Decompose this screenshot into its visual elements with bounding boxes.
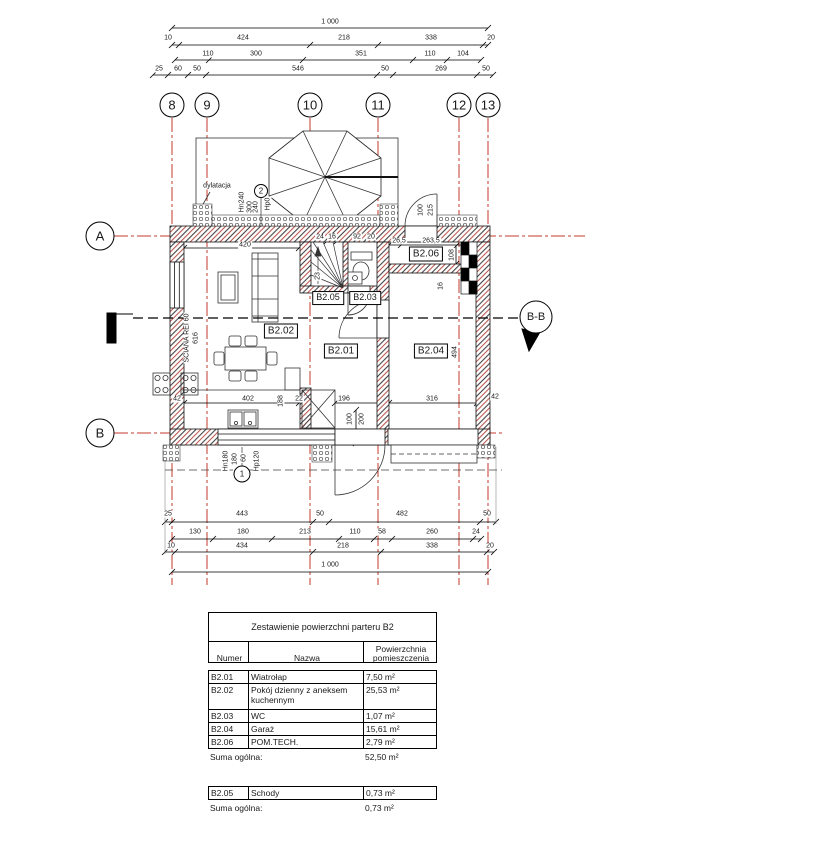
dim-215: 215 xyxy=(428,203,435,217)
col-header-powierzchnia: Powierzchnia pomieszczenia xyxy=(364,642,436,663)
dim-label: 60 xyxy=(173,66,183,73)
table-row: B2.02 Pokój dzienny z aneksem kuchennym … xyxy=(209,684,436,710)
note-hn240: Hn240 xyxy=(239,191,246,214)
cell-numer: B2.01 xyxy=(209,671,249,683)
dim-label: 58 xyxy=(377,529,387,536)
grid-bubble-11: 11 xyxy=(371,98,385,113)
dim-196: 196 xyxy=(337,396,351,403)
cell-nazwa: Schody xyxy=(249,787,364,799)
cell-area: 15,61 m² xyxy=(364,723,436,735)
dim-bottom-total: 1 000 xyxy=(320,562,340,569)
dim-420: 420 xyxy=(238,242,252,249)
dim-label: 338 xyxy=(425,543,439,550)
dim-label: 50 xyxy=(380,66,390,73)
dim-label: 50 xyxy=(481,66,491,73)
dim-label: 482 xyxy=(395,511,409,518)
dim-label: 218 xyxy=(336,543,350,550)
dim-616: 616 xyxy=(193,331,200,345)
floor-plan-sheet: 8 9 10 11 12 13 A B B-B 2 1 1 000 10 424… xyxy=(0,0,819,859)
dim-92: 92 xyxy=(352,234,362,241)
dim-42-right: 42 xyxy=(490,394,500,401)
room-label-b205: B2.05 xyxy=(312,291,344,305)
dim-20: 20 xyxy=(366,234,376,241)
cell-area: 0,73 m² xyxy=(364,787,436,799)
dim-label: 110 xyxy=(201,51,214,58)
dim-494: 494 xyxy=(452,345,459,359)
dim-label: 351 xyxy=(354,51,368,58)
dim-16b: 16 xyxy=(438,281,445,291)
dim-100: 100 xyxy=(418,203,425,217)
dim-label: 24 xyxy=(471,529,481,536)
dim-316: 316 xyxy=(425,396,439,403)
dim-label: 260 xyxy=(425,529,439,536)
dim-label: 50 xyxy=(482,511,492,518)
dim-22: 22 xyxy=(294,396,304,403)
area-table-header: Zestawienie powierzchni parteru B2 Numer… xyxy=(208,612,437,663)
room-label-b202: B2.02 xyxy=(264,324,298,339)
note-hp0: Hp0 xyxy=(265,197,272,212)
dim-label: 50 xyxy=(315,511,325,518)
dim-402: 402 xyxy=(241,396,255,403)
table-row: B2.04 Garaż 15,61 m² xyxy=(209,723,436,736)
dim-263-5: 263,5 xyxy=(421,238,441,245)
cell-area: 25,53 m² xyxy=(364,684,436,709)
canopy-roof xyxy=(194,131,398,226)
insulation-blocks xyxy=(163,204,495,462)
dim-label: 25 xyxy=(163,511,173,518)
dim-23: 23 xyxy=(315,271,322,281)
grid-bubble-B: B xyxy=(96,426,105,441)
dim-label: 20 xyxy=(485,543,495,550)
cell-nazwa: WC xyxy=(249,710,364,722)
area-table-body: B2.01 Wiatrołap 7,50 m² B2.02 Pokój dzie… xyxy=(208,670,437,749)
col-header-numer: Numer xyxy=(209,642,249,663)
suma2-label: Suma ogólna: xyxy=(210,803,262,813)
dim-top-total: 1 000 xyxy=(320,19,340,26)
grid-bubble-12: 12 xyxy=(452,98,466,113)
note-hp120: Hp120 xyxy=(254,450,261,473)
grid-bubble-A: A xyxy=(96,229,105,244)
note-dylatacja: dylatacja xyxy=(202,183,232,190)
table-row: B2.06 POM.TECH. 2,79 m² xyxy=(209,736,436,748)
room-label-b204: B2.04 xyxy=(414,344,448,359)
suma-label: Suma ogólna: xyxy=(210,752,262,762)
dim-24: 24 xyxy=(315,234,325,241)
dim-label: 338 xyxy=(424,35,438,42)
window-mark-top: 2 xyxy=(259,187,263,196)
dim-188: 188 xyxy=(278,394,285,408)
grid-bubble-13: 13 xyxy=(481,98,495,113)
dim-label: 218 xyxy=(337,35,351,42)
cell-numer: B2.02 xyxy=(209,684,249,709)
window-mark-bottom: 1 xyxy=(240,470,244,479)
dim-42-left: 42 xyxy=(172,396,182,403)
room-label-b203: B2.03 xyxy=(349,291,381,305)
cell-nazwa: Wiatrołap xyxy=(249,671,364,683)
cell-numer: B2.06 xyxy=(209,736,249,748)
note-sciana-rei60: ŚCIANA REI 60 xyxy=(184,312,191,363)
table-row: B2.03 WC 1,07 m² xyxy=(209,710,436,723)
cell-nazwa: POM.TECH. xyxy=(249,736,364,748)
cell-numer: B2.04 xyxy=(209,723,249,735)
dim-200: 200 xyxy=(359,412,366,426)
dim-label: 546 xyxy=(291,66,305,73)
dim-label: 443 xyxy=(235,511,249,518)
cell-area: 7,50 m² xyxy=(364,671,436,683)
table-row: B2.05 Schody 0,73 m² xyxy=(209,787,436,799)
suma-value: 52,50 m² xyxy=(365,752,399,762)
dim-16: 16 xyxy=(327,234,337,241)
wc-fixtures xyxy=(348,252,372,284)
cell-numer: B2.05 xyxy=(209,787,249,799)
dim-label: 424 xyxy=(236,35,250,42)
col-header-nazwa: Nazwa xyxy=(249,642,364,663)
grid-bubble-8: 8 xyxy=(168,98,175,113)
area-table-title: Zestawienie powierzchni parteru B2 xyxy=(209,613,436,642)
stairs xyxy=(311,242,343,288)
cell-nazwa: Pokój dzienny z aneksem kuchennym xyxy=(249,684,364,709)
dim-label: 110 xyxy=(423,51,436,58)
room-label-b206: B2.06 xyxy=(409,247,443,262)
dim-label: 110 xyxy=(348,529,361,536)
note-hn180: Hn180 xyxy=(223,450,230,473)
dim-108: 108 xyxy=(449,248,456,262)
stairs-table: B2.05 Schody 0,73 m² xyxy=(208,786,437,800)
cell-numer: B2.03 xyxy=(209,710,249,722)
dim-label: 130 xyxy=(188,529,202,536)
chimney-block xyxy=(461,242,477,294)
dim-label: 269 xyxy=(434,66,448,73)
room-label-b201: B2.01 xyxy=(324,344,358,359)
cell-area: 1,07 m² xyxy=(364,710,436,722)
note-240: 240 xyxy=(253,200,260,214)
garage-door xyxy=(391,445,477,463)
grid-bubble-9: 9 xyxy=(203,98,210,113)
dim-label: 25 xyxy=(154,66,164,73)
cell-nazwa: Garaż xyxy=(249,723,364,735)
dim-26-5: 26,5 xyxy=(391,238,407,245)
table-row: B2.01 Wiatrołap 7,50 m² xyxy=(209,671,436,684)
dim-label: 300 xyxy=(249,51,263,58)
dim-label: 434 xyxy=(235,543,249,550)
grid-bubble-10: 10 xyxy=(303,98,317,113)
dim-label: 20 xyxy=(486,35,496,42)
dim-label: 180 xyxy=(236,529,250,536)
cell-area: 2,79 m² xyxy=(364,736,436,748)
dim-label: 213 xyxy=(298,529,312,536)
dim-label: 10 xyxy=(166,543,176,550)
dim-100b: 100 xyxy=(347,412,354,426)
dim-label: 104 xyxy=(456,51,470,58)
note-60: 60 xyxy=(241,453,248,463)
dim-label: 50 xyxy=(192,66,202,73)
dim-label: 10 xyxy=(163,35,173,42)
section-bb-label: B-B xyxy=(527,311,545,323)
note-180: 180 xyxy=(232,452,239,466)
suma2-value: 0,73 m² xyxy=(365,803,394,813)
